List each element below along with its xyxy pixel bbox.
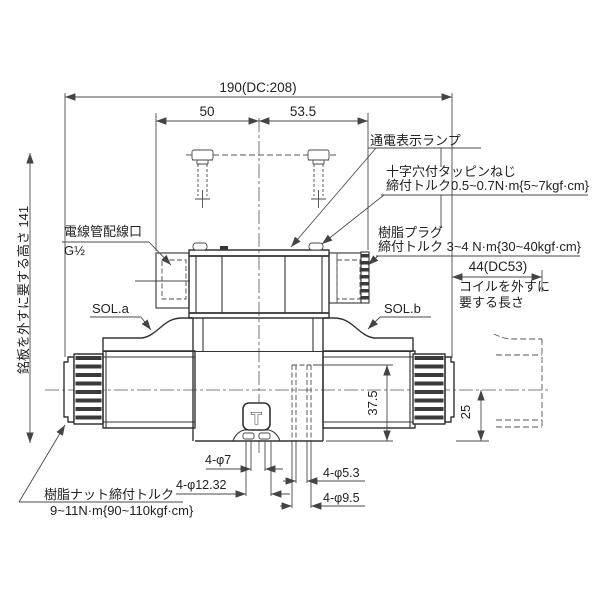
dim-total-width: 190(DC:208) xyxy=(219,80,296,95)
drawing-canvas: T xyxy=(0,0,600,600)
leader-lines xyxy=(19,148,588,502)
dim-right-offset: 53.5 xyxy=(290,104,316,119)
valve-outline-drawing: T xyxy=(0,0,600,600)
indicator-lamp xyxy=(220,246,228,250)
mounting-bolts-phantom xyxy=(186,150,336,208)
sol-a-cover xyxy=(103,318,193,351)
label-resin-plug-2: 締付トルク 3~4 N·m{30~40kgf·cm} xyxy=(378,239,582,254)
label-sol-b: SOL.b xyxy=(384,301,421,316)
left-resin-nut xyxy=(74,354,103,424)
t-port-boss: T xyxy=(233,403,280,441)
dim-mount-spotface: 4-φ9.5 xyxy=(323,491,360,505)
label-tapping-screw-2: 締付トルク0.5~0.7N·m{5~7kgf·cm} xyxy=(386,178,590,193)
dim-t-port-hole: 4-φ7 xyxy=(205,453,231,467)
t-port-mark: T xyxy=(251,409,262,428)
left-solenoid-tube xyxy=(103,351,195,428)
dim-left-offset: 50 xyxy=(199,104,214,119)
dim-mount-hole: 4-φ5.3 xyxy=(323,466,360,480)
resin-plug-boss xyxy=(329,252,369,303)
right-resin-nut xyxy=(413,354,445,424)
label-resin-plug-1: 樹脂プラグ xyxy=(378,225,443,240)
label-nameplate-height: 銘板を外すに要する高さ 141 xyxy=(16,206,31,374)
coil-removed-phantom xyxy=(494,334,542,427)
left-end-cap xyxy=(64,357,74,422)
label-coil-removal-1: コイルを外すに xyxy=(459,279,550,294)
right-end-cap xyxy=(445,357,454,422)
label-conduit-2: G½ xyxy=(64,243,85,258)
label-resin-nut-2: 9~11N·m{90~110kgf·cm} xyxy=(50,503,194,518)
label-resin-nut-1: 樹脂ナット締付トルク xyxy=(44,487,174,502)
mount-hole-hidden-lines xyxy=(292,365,311,441)
dim-under-clearance: 25 xyxy=(458,405,473,419)
label-tapping-screw-1: 十字穴付タッピンねじ xyxy=(386,164,516,179)
label-sol-a: SOL.a xyxy=(92,301,130,316)
dim-t-port-spotface: 4-φ12.32 xyxy=(176,478,227,492)
label-conduit-1: 電線管配線口 xyxy=(64,224,142,239)
dim-coil-removal: 44(DC53) xyxy=(469,259,528,274)
label-lamp: 通電表示ランプ xyxy=(370,133,461,148)
tapping-screw-right xyxy=(309,243,323,250)
annotation-texts: 190(DC:208) 50 53.5 通電表示ランプ 十字穴付タッピンねじ 締… xyxy=(16,80,590,518)
tapping-screw-left xyxy=(193,243,207,250)
label-coil-removal-2: 要する長さ xyxy=(459,295,524,310)
dim-hole-height: 37.5 xyxy=(365,390,380,415)
sol-b-cover xyxy=(323,318,413,351)
conduit-boss xyxy=(156,253,189,308)
